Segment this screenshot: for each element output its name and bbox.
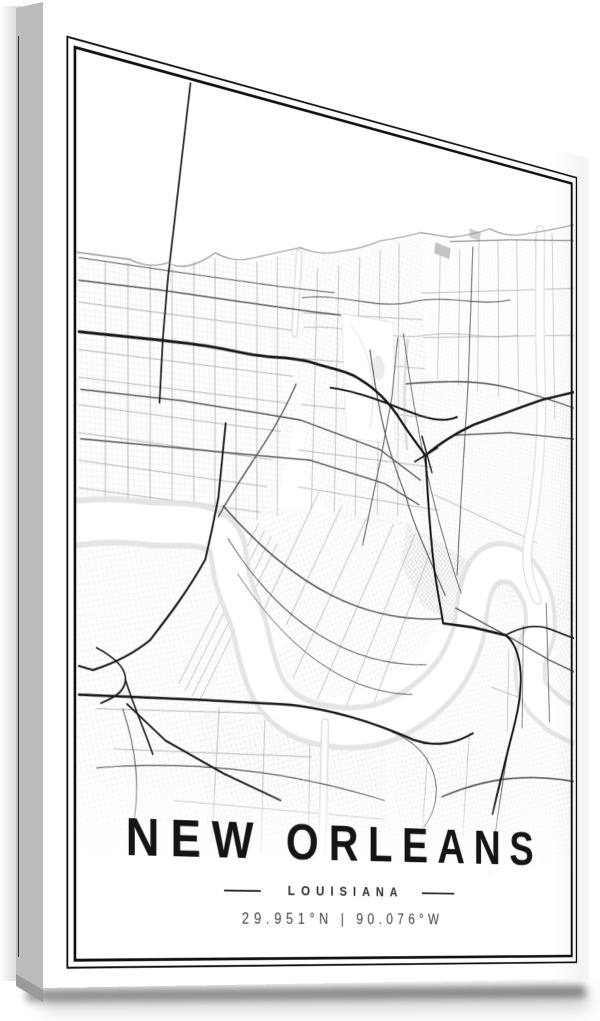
poster-face: NEW ORLEANS LOUISIANA 29.951°N | 90.076°… xyxy=(43,3,588,988)
wrapped-border-line xyxy=(18,36,20,957)
face-right-shade xyxy=(43,3,588,988)
canvas-print-mockup: NEW ORLEANS LOUISIANA 29.951°N | 90.076°… xyxy=(0,0,600,1021)
